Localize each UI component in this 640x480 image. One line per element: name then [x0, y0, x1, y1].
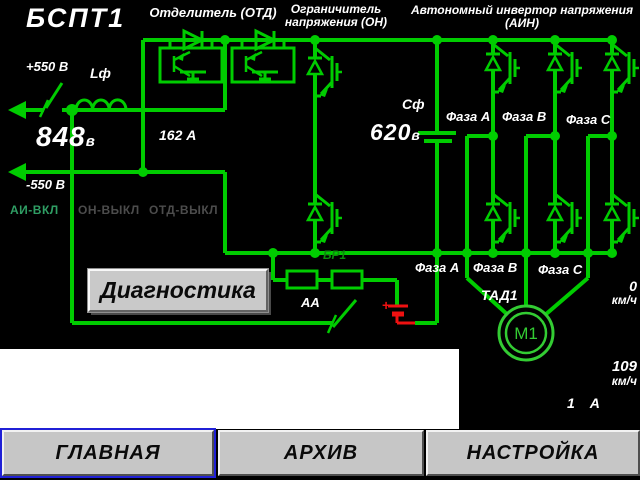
speed-actual-unit: км/ч [597, 294, 637, 307]
archive-button[interactable]: АРХИВ [218, 430, 424, 476]
section-label-otd: Отделитель (ОТД) [140, 6, 286, 20]
ain-a-upper-igbt [486, 40, 520, 102]
dc-link-voltage-unit: в [411, 127, 419, 143]
dc-plus-bus [143, 35, 617, 172]
on-branch [308, 40, 342, 254]
input-current-readout: 162 А [159, 128, 196, 143]
motor-symbol: М1 [499, 306, 553, 360]
ain-c-upper-igbt [605, 40, 639, 102]
phase-a-top-label: Фаза А [446, 110, 490, 124]
phase-a-bottom-label: Фаза А [415, 261, 459, 275]
battery-plus-sign: + [382, 297, 390, 313]
motor-label: М1 [514, 324, 538, 343]
bspt-hmi-screen: + М1 БСПТ1 Отделитель (ОТД) Ограничитель… [0, 0, 640, 480]
ain-leg-b [548, 40, 582, 252]
input-voltage-value: 848 [36, 121, 86, 152]
ain-leg-c [605, 40, 639, 252]
on-lower-igbt [308, 190, 342, 252]
resistor-block-label: БР1 [323, 249, 346, 262]
ain-c-lower-igbt [605, 190, 639, 252]
phase-c-bottom-label: Фаза С [538, 263, 582, 277]
section-label-ain-line1: Автономный инвертор напряжения [404, 4, 640, 17]
battery-switch-label: АА [301, 296, 320, 310]
dc-link-voltage-value: 620 [370, 119, 411, 145]
section-label-ain-line2: (АИН) [404, 17, 640, 30]
motor-current-readout: 1А [567, 396, 600, 411]
phase-c-top-label: Фаза С [566, 113, 610, 127]
ain-b-lower-igbt [548, 190, 582, 252]
supply-minus-label: -550 В [26, 178, 65, 192]
settings-button[interactable]: НАСТРОЙКА [426, 430, 640, 476]
speed-reference-readout: 109 км/ч [595, 359, 637, 387]
on-upper-igbt [308, 44, 342, 106]
ain-b-upper-igbt [548, 40, 582, 102]
inductor-label: Lф [90, 66, 111, 81]
input-voltage-unit: в [86, 133, 95, 150]
input-voltage-readout: 848в [36, 122, 95, 151]
status-on: ОН-ВЫКЛ [78, 204, 140, 217]
message-panel [0, 349, 459, 429]
main-button[interactable]: ГЛАВНАЯ [2, 430, 214, 476]
section-label-on-line2: напряжения (ОН) [274, 16, 398, 29]
status-otd: ОТД-ВЫКЛ [149, 204, 218, 217]
speed-actual-value: 0 [597, 279, 637, 294]
speed-reference-value: 109 [595, 359, 637, 375]
phase-b-top-label: Фаза В [502, 110, 546, 124]
motor-group-label: ТАД1 [481, 288, 518, 303]
motor-current-unit: А [590, 395, 600, 411]
ain-leg-a [486, 40, 520, 252]
battery-switch [328, 300, 356, 333]
main-button-focus-frame: ГЛАВНАЯ [0, 428, 216, 478]
speed-reference-unit: км/ч [595, 375, 637, 388]
phase-b-bottom-label: Фаза В [473, 261, 517, 275]
section-label-on-line1: Ограничитель [274, 3, 398, 16]
dc-link-voltage-readout: 620в [370, 120, 420, 144]
supply-plus-label: +550 В [26, 60, 68, 74]
diagnostics-button[interactable]: Диагностика [88, 269, 268, 312]
dc-link-capacitor [415, 40, 456, 323]
status-ai: АИ-ВКЛ [10, 204, 59, 217]
ain-a-lower-igbt [486, 190, 520, 252]
page-title: БСПТ1 [26, 4, 125, 32]
speed-actual-readout: 0 км/ч [597, 279, 637, 306]
capacitor-label: Сф [402, 97, 425, 112]
motor-current-value: 1 [567, 395, 575, 411]
